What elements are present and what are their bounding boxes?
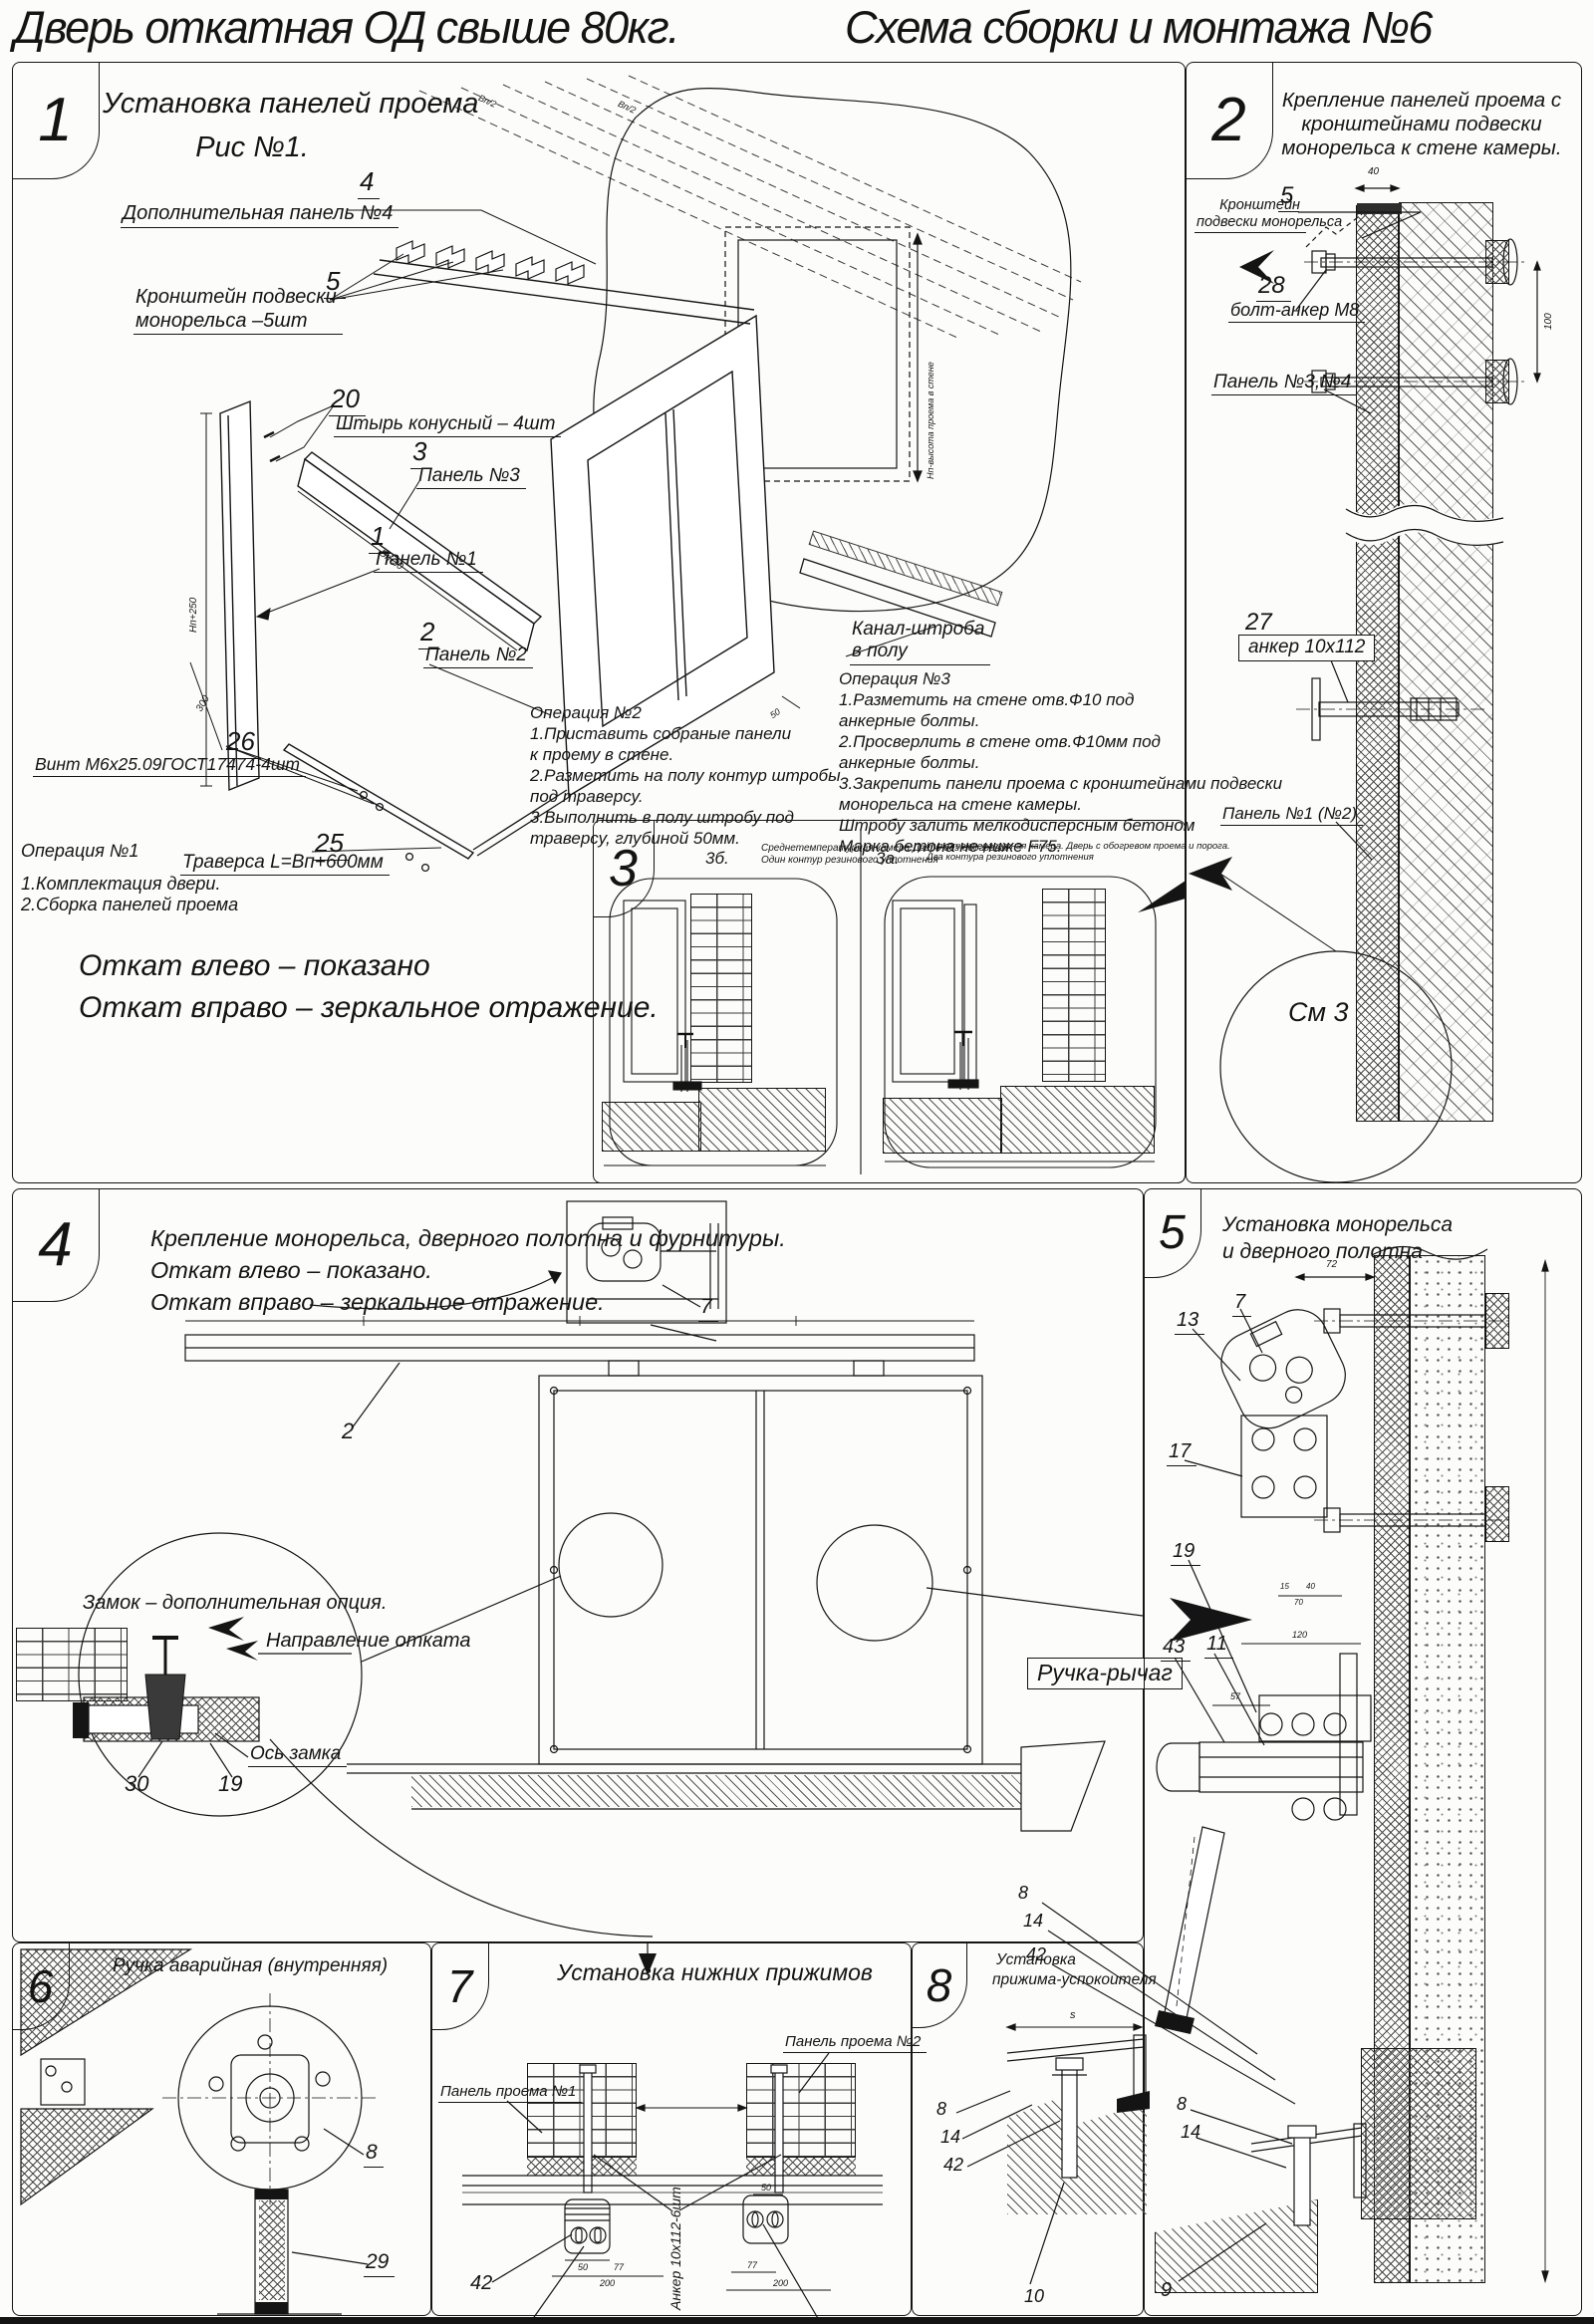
callout-42-p8: 42 xyxy=(943,2155,963,2176)
callout-43: 43 xyxy=(1161,1636,1191,1662)
operation3-line3: 2.Просверлить в стене отв.Ф10мм под xyxy=(839,732,1161,752)
dim-panel-height: Нп+250 xyxy=(188,598,200,633)
callout-28-num: 28 xyxy=(1256,272,1291,302)
operation1-line2: 2.Сборка панелей проема xyxy=(21,895,238,915)
panel-8-damper-clamp: 8 Установка прижима-успокоителя s 8 14 4… xyxy=(912,1942,1144,2316)
dim-100: 100 xyxy=(1543,313,1555,330)
panel7-heading: Установка нижних прижимов xyxy=(557,1959,873,1986)
view-3a-num: 3а. xyxy=(876,849,900,869)
callout-42-mid: 42 xyxy=(1026,1944,1046,1965)
operation3-line6: монорельса на стене камеры. xyxy=(839,795,1082,815)
anchor-vertical-label: Анкер 10х112-6шт xyxy=(667,2187,684,2310)
operation2-line2: к проему в стене. xyxy=(530,745,673,765)
operation3-line2: анкерные болты. xyxy=(839,711,979,731)
dim-77-left: 77 xyxy=(614,2262,624,2273)
panel4-number: 4 xyxy=(38,1209,72,1280)
callout-14-mid: 14 xyxy=(1023,1911,1043,1932)
panel4-heading1: Крепление монорельса, дверного полотна и… xyxy=(150,1225,786,1253)
callout-27-label: анкер 10х112 xyxy=(1238,635,1375,661)
sheet-bottom-edge xyxy=(0,2317,1594,2324)
callout-25-label: Траверса L=Вп+600мм xyxy=(180,852,390,876)
operation2-line4: под траверсу. xyxy=(530,787,644,807)
operation2-line0: Операция №2 xyxy=(530,703,642,723)
lock-option-label: Замок – дополнительная опция. xyxy=(83,1592,387,1616)
panel4-heading2: Откат влево – показано. xyxy=(150,1257,432,1285)
callout-29: 29 xyxy=(364,2250,395,2277)
panel34-label: Панель №3,№4 xyxy=(1211,372,1357,395)
drawing-sheet: Дверь откатная ОД свыше 80кг. Схема сбор… xyxy=(0,0,1594,2324)
channel-label: Канал-штробав полу xyxy=(850,619,990,665)
sheet-title-left: Дверь откатная ОД свыше 80кг. xyxy=(14,2,678,54)
panel2-heading: Крепление панелей проема скронштейнами п… xyxy=(1272,89,1571,161)
slide-note-2: Откат вправо – зеркальное отражение. xyxy=(79,990,659,1025)
operation1-line1: 1.Комплектация двери. xyxy=(21,874,220,895)
callout-26-label: Винт М6х25.09ГОСТ17474-4шт xyxy=(33,754,306,777)
panel4-number-box: 4 xyxy=(12,1188,100,1302)
panel3-number: 3 xyxy=(609,839,638,899)
operation2-line1: 1.Приставить собраные панели xyxy=(530,724,791,744)
bracket-label-p2: Кронштейнподвески монорельса xyxy=(1195,197,1306,233)
operation2-line3: 2.Разметить на полу контур штробы xyxy=(530,766,841,786)
panel-7-bottom-clamps: 7 Установка нижних прижимов Панель проем… xyxy=(431,1942,912,2316)
callout-11: 11 xyxy=(1204,1633,1233,1659)
operation3-line1: 1.Разметить на стене отв.Ф10 под xyxy=(839,690,1134,710)
panel5-heading1: Установка монорельса xyxy=(1222,1213,1453,1238)
panel12-label: Панель №1 (№2) xyxy=(1220,804,1363,826)
dim-72: 72 xyxy=(1326,1259,1337,1271)
dim-s: s xyxy=(1070,2009,1076,2022)
callout-19-p4: 19 xyxy=(218,1771,242,1797)
panel8-heading2: прижима-успокоителя xyxy=(992,1971,1157,1989)
panel1-number: 1 xyxy=(38,85,72,155)
callout-14-p5: 14 xyxy=(1181,2122,1200,2143)
callout-7-p5: 7 xyxy=(1232,1291,1251,1317)
callout-8-p8: 8 xyxy=(936,2099,946,2120)
panel4-heading3: Откат вправо – зеркальное отражение. xyxy=(150,1289,605,1317)
callout-3-label: Панель №3 xyxy=(416,465,526,489)
panel-5-install-monorail-leaf: 5 Установка монорельса и дверного полотн… xyxy=(1144,1188,1582,2316)
panel1-fig-label: Рис №1. xyxy=(103,130,401,164)
panel5-heading2: и дверного полотна xyxy=(1222,1240,1423,1265)
lock-axis-label: Ось замка xyxy=(248,1743,347,1767)
operation3-line4: анкерные болты. xyxy=(839,753,979,773)
dim-77-right: 77 xyxy=(747,2260,757,2271)
panel-2-fix-panels-to-wall: 2 Крепление панелей проема скронштейнами… xyxy=(1186,62,1582,1183)
operation3-line0: Операция №3 xyxy=(839,669,950,689)
dim-120: 120 xyxy=(1292,1630,1307,1641)
panel-4-monorail-door-hardware: 4 Крепление монорельса, дверного полотна… xyxy=(12,1188,1144,1942)
slide-note-1: Откат влево – показано xyxy=(79,948,430,983)
sheet-title-right: Схема сборки и монтажа №6 xyxy=(845,2,1432,54)
panel1-heading: Установка панелей проема xyxy=(103,87,401,121)
callout-42-p7: 42 xyxy=(470,2272,492,2296)
callout-8-mid: 8 xyxy=(1018,1883,1028,1904)
operation1-title: Операция №1 xyxy=(21,841,138,862)
callout-4-num: 4 xyxy=(358,166,380,199)
callout-19-p5: 19 xyxy=(1171,1540,1200,1566)
callout-10-p8: 10 xyxy=(1024,2286,1044,2307)
callout-2-p4: 2 xyxy=(342,1419,354,1444)
dim-15: 15 xyxy=(1280,1582,1289,1591)
panel6-heading: Ручка аварийная (внутренняя) xyxy=(113,1955,388,1977)
see-detail-3: См 3 xyxy=(1288,997,1349,1029)
dim-opening-height: Нп-высота проема в стене xyxy=(926,362,936,479)
panel2-number: 2 xyxy=(1211,85,1245,155)
callout-2-label: Панель №2 xyxy=(423,645,533,668)
dim-40-p5: 40 xyxy=(1306,1582,1315,1591)
panel-3-seal-details: 3 3б. Среднетемпературная камера.Дверь б… xyxy=(593,820,1186,1183)
panel5-number: 5 xyxy=(1159,1205,1186,1260)
dim-70: 70 xyxy=(1294,1598,1303,1607)
view-3b-num: 3б. xyxy=(705,849,729,869)
opening-panel1-label: Панель проема №1 xyxy=(438,2083,582,2103)
panel1-number-box: 1 xyxy=(12,62,100,179)
panel2-number-box: 2 xyxy=(1186,62,1273,179)
callout-20-num: 20 xyxy=(329,384,366,416)
panel8-number: 8 xyxy=(927,1958,952,2012)
slide-direction-label: Направление отката xyxy=(266,1630,471,1654)
callout-7-p4: 7 xyxy=(698,1295,718,1322)
dim-50-right: 50 xyxy=(761,2183,771,2194)
dim-40: 40 xyxy=(1368,166,1379,178)
panel7-number: 7 xyxy=(447,1959,473,2013)
callout-30: 30 xyxy=(125,1771,148,1797)
callout-5-label: Кронштейн подвескимонорельса –5шт xyxy=(133,286,343,335)
dim-200-right: 200 xyxy=(773,2278,788,2289)
callout-17: 17 xyxy=(1167,1440,1196,1466)
callout-3-num: 3 xyxy=(410,436,432,469)
callout-8-p5: 8 xyxy=(1177,2094,1187,2115)
callout-9-p5: 9 xyxy=(1161,2279,1172,2303)
callout-14-p8: 14 xyxy=(940,2127,960,2148)
view-3a-caption: Низкотемпературная камера. Дверь с обогр… xyxy=(927,841,1230,863)
panel6-number: 6 xyxy=(28,1959,54,2013)
callout-28-label: болт-анкер М8 xyxy=(1228,300,1365,323)
callout-20-label: Штырь конусный – 4шт xyxy=(334,413,561,437)
dim-200-left: 200 xyxy=(600,2278,615,2289)
dim-50-left: 50 xyxy=(578,2262,588,2273)
panel3-drawing xyxy=(594,821,1187,1184)
callout-4-label: Дополнительная панель №4 xyxy=(121,202,398,228)
opening-panel2-label: Панель проема №2 xyxy=(783,2033,927,2053)
callout-13: 13 xyxy=(1175,1309,1204,1335)
panel5-drawing xyxy=(1145,1189,1583,2317)
dim-57: 57 xyxy=(1230,1691,1240,1702)
callout-8-p6: 8 xyxy=(364,2141,384,2168)
panel-6-emergency-handle: 6 Ручка аварийная (внутренняя) 8 29 xyxy=(12,1942,431,2316)
